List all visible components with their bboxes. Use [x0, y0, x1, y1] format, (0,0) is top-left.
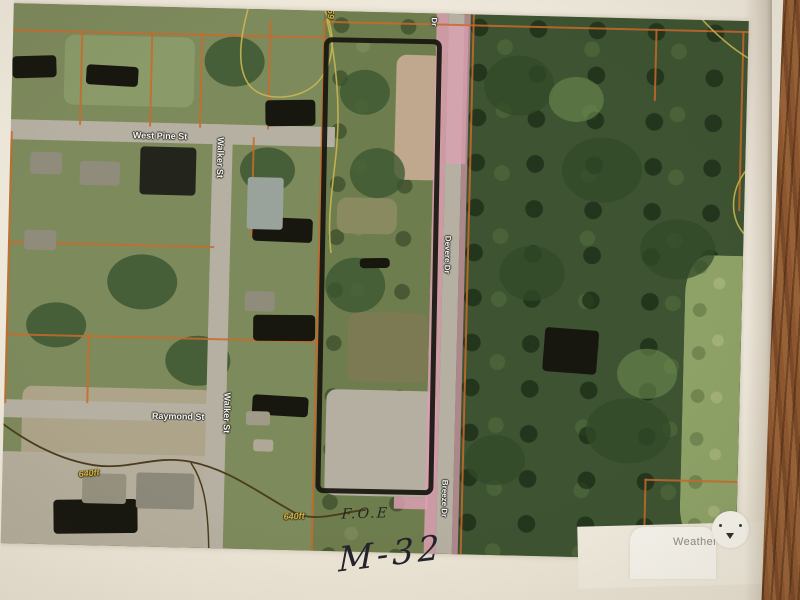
building	[136, 472, 195, 509]
street-label-west-pine: West Pine St	[133, 130, 188, 141]
contour-label-640-east: 640ft	[283, 511, 304, 522]
street-label-breeze: Breeze Dr	[439, 480, 449, 532]
contour-label-640-west: 640ft	[78, 467, 100, 479]
house-roof	[253, 439, 273, 451]
street-label-devere-partial: Dr	[429, 17, 438, 35]
street-label-devere: Devere Dr	[442, 236, 452, 292]
redaction-mark	[139, 146, 196, 195]
subject-parcel-outline	[315, 37, 442, 495]
redaction-mark	[86, 64, 139, 87]
contour-label-partial-59: 59	[325, 9, 336, 31]
weather-tab: Weather	[630, 527, 716, 579]
photo-of-parcel-map-on-desk: West Pine St Walker St Walker St Raymond…	[0, 0, 800, 600]
house-roof	[247, 177, 284, 230]
dot-icon	[719, 524, 722, 527]
aerial-map: West Pine St Walker St Walker St Raymond…	[0, 3, 749, 561]
house-roof	[30, 152, 63, 175]
dot-icon	[739, 524, 742, 527]
handwritten-foe-note: F.O.E	[341, 505, 389, 522]
weather-label: Weather	[673, 536, 717, 548]
redaction-mark	[265, 100, 315, 127]
redaction-mark	[542, 327, 599, 375]
house-roof	[246, 411, 270, 426]
redaction-mark	[253, 315, 315, 341]
redaction-mark	[53, 499, 137, 534]
street-label-walker-north: Walker St	[214, 137, 226, 199]
caret-down-icon	[726, 533, 734, 539]
house-roof	[245, 291, 275, 312]
house-roof	[24, 230, 56, 251]
street-label-raymond: Raymond St	[152, 411, 205, 422]
redaction-mark	[12, 55, 57, 78]
street-label-walker-south: Walker St	[221, 392, 233, 454]
house-roof	[80, 161, 121, 186]
